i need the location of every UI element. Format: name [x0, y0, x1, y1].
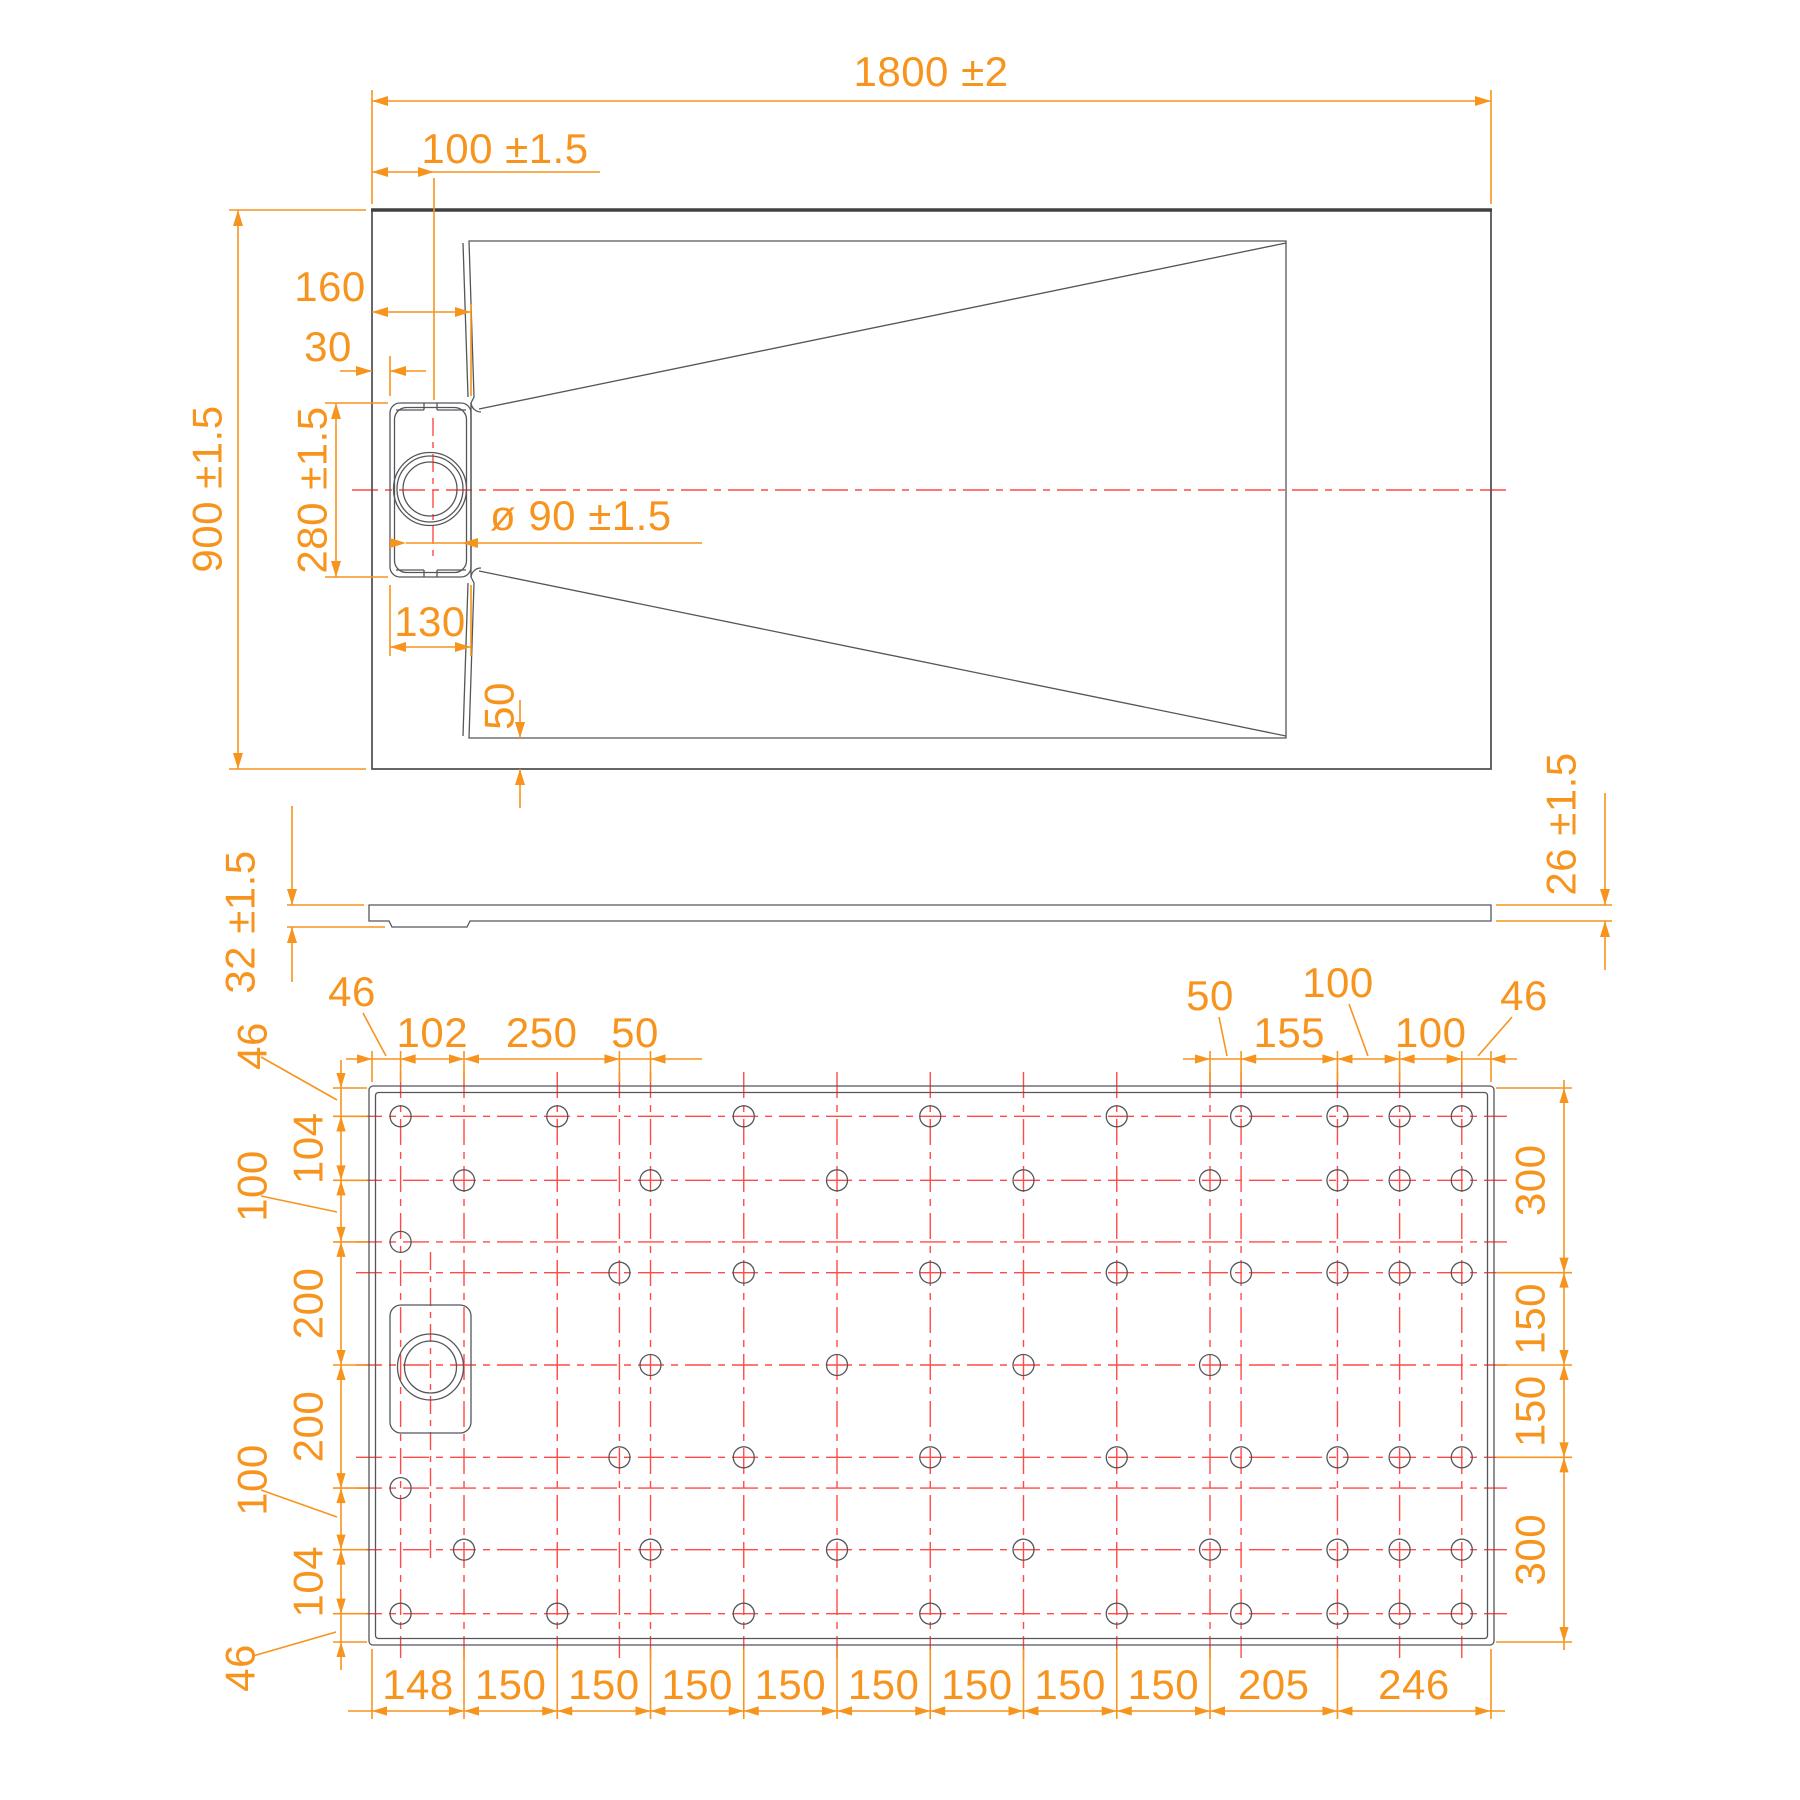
dim-arrow: [336, 1473, 345, 1488]
dim-floor-margin-label: 50: [476, 682, 523, 730]
dim-chain-label: 155: [1253, 1009, 1325, 1056]
dim-chain-label: 46: [1500, 972, 1548, 1019]
dim-floor-margin: 50: [476, 682, 526, 808]
dim-chain-label: 46: [328, 968, 376, 1015]
dim-arrow: [1322, 1706, 1337, 1715]
dim-leader: [253, 1632, 336, 1656]
dim-arrow: [1195, 1054, 1210, 1063]
dim-chain-label: 150: [475, 1661, 547, 1708]
dim-chain-label: 246: [1378, 1661, 1450, 1708]
dim-arrow: [336, 1165, 345, 1180]
dim-arrow: [336, 1073, 345, 1088]
dim-arrow: [1337, 1706, 1352, 1715]
dim-leader: [1478, 1017, 1512, 1056]
dim-chain-label: 150: [941, 1661, 1013, 1708]
dim-drain-diameter: ø 90 ±1.5: [390, 492, 702, 548]
dim-overall-width-label: 1800 ±2: [853, 48, 1008, 95]
dim-chain-label: 100: [1395, 1009, 1467, 1056]
dim-chain-label: 150: [661, 1661, 733, 1708]
dim-arrow: [336, 1599, 345, 1614]
dim-drain-side-gap-label: 30: [304, 323, 352, 370]
dim-chain-label: 150: [1128, 1661, 1200, 1708]
side-profile: [369, 905, 1491, 927]
dim-arrow: [1559, 1088, 1568, 1103]
dim-chain-label: 300: [1507, 1145, 1554, 1217]
dim-drain-width-label: 130: [394, 598, 466, 645]
dim-arrow: [1559, 1273, 1568, 1288]
dim-chain-label: 100: [229, 1444, 276, 1516]
dim-arrow: [1559, 1350, 1568, 1365]
dim-chain-label: 250: [506, 1009, 578, 1056]
dim-chain-label: 200: [285, 1268, 332, 1340]
dim-chain-label: 205: [1238, 1661, 1310, 1708]
dim-thickness-right-label: 26 ±1.5: [1538, 752, 1585, 895]
slope-diagonal-top: [479, 243, 1286, 409]
dim-arrow: [1559, 1365, 1568, 1380]
drain-pipe: [403, 462, 457, 516]
drain-hook-bottom: [471, 568, 481, 577]
dim-chain-label: 150: [1507, 1283, 1554, 1355]
dim-drain-right-edge-label: 160: [294, 263, 366, 310]
dim-drain-offset: 100 ±1.5: [372, 125, 600, 400]
drain-flange-inner: [397, 456, 463, 522]
dim-chain-label: 150: [848, 1661, 920, 1708]
top-view: 1800 ±2 100 ±1.5 160 30 900 ±1.5: [184, 48, 1507, 808]
dim-arrow: [336, 1350, 345, 1365]
dim-arrow: [357, 1054, 372, 1063]
dim-arrow: [1559, 1457, 1568, 1472]
dim-overall-height-label: 900 ±1.5: [184, 405, 231, 572]
dim-arrow: [1490, 1054, 1505, 1063]
slope-diagonal-bottom: [479, 571, 1286, 736]
hole-centerlines: [356, 1072, 1507, 1658]
dimension-chains: 4610225050501551001004614815015015015015…: [217, 959, 1569, 1716]
dim-arrow: [336, 1550, 345, 1565]
dim-leader: [1219, 1017, 1227, 1056]
dim-thickness-left-label: 32 ±1.5: [217, 850, 264, 993]
dim-chain-label: 100: [229, 1150, 276, 1222]
dim-arrow: [336, 1116, 345, 1131]
dim-chain-label: 50: [611, 1009, 659, 1056]
dim-chain-label: 100: [1302, 959, 1374, 1006]
dim-chain-label: 50: [1186, 972, 1234, 1019]
dim-chain-label: 46: [217, 1644, 264, 1692]
dim-drain-diameter-label: ø 90 ±1.5: [490, 492, 672, 539]
dim-arrow: [1559, 1442, 1568, 1457]
dim-chain-label: 104: [285, 1546, 332, 1618]
dim-chain-label: 150: [568, 1661, 640, 1708]
dim-chain-label: 150: [755, 1661, 827, 1708]
dim-arrow: [1475, 1706, 1490, 1715]
dim-chain-label: 150: [1507, 1375, 1554, 1447]
dim-arrow: [336, 1365, 345, 1380]
side-view: 32 ±1.5 26 ±1.5: [217, 752, 1613, 993]
dim-chain-label: 46: [229, 1022, 276, 1070]
dim-thickness-right: 26 ±1.5: [1496, 752, 1612, 970]
dim-arrow: [336, 1535, 345, 1550]
dim-drain-offset-label: 100 ±1.5: [421, 125, 588, 172]
drain-hook-top: [471, 403, 481, 412]
bottom-view: 4610225050501551001004614815015015015015…: [217, 959, 1573, 1719]
dim-arrow: [1559, 1258, 1568, 1273]
dim-thickness-left: 32 ±1.5: [217, 806, 386, 994]
dim-leader: [1349, 1004, 1368, 1056]
dim-drain-side-gap: 30: [304, 323, 426, 396]
dim-arrow: [336, 1242, 345, 1257]
dim-arrow: [1337, 1054, 1352, 1063]
dim-arrow: [336, 1488, 345, 1503]
dim-chain-label: 102: [397, 1009, 469, 1056]
dim-chain-label: 148: [382, 1661, 454, 1708]
dim-chain-label: 300: [1507, 1514, 1554, 1586]
dim-chain-label: 150: [1034, 1661, 1106, 1708]
dim-arrow: [336, 1642, 345, 1657]
dim-arrow: [336, 1227, 345, 1242]
dim-drain-length-label: 280 ±1.5: [289, 406, 336, 573]
dim-arrow: [1210, 1706, 1225, 1715]
drain-flange-outer: [394, 453, 467, 526]
dim-drain-width: 130: [390, 585, 471, 656]
cad-drawing: 1800 ±2 100 ±1.5 160 30 900 ±1.5: [0, 0, 1800, 1800]
technical-drawing-page: 1800 ±2 100 ±1.5 160 30 900 ±1.5: [0, 0, 1800, 1800]
dim-arrow: [1559, 1627, 1568, 1642]
dim-leader: [363, 1013, 386, 1056]
extension-lines: [333, 1051, 1572, 1719]
dim-chain-label: 104: [285, 1113, 332, 1185]
floor-edge-double-top: [463, 243, 468, 397]
dim-arrow: [336, 1180, 345, 1195]
dim-chain-label: 200: [285, 1391, 332, 1463]
